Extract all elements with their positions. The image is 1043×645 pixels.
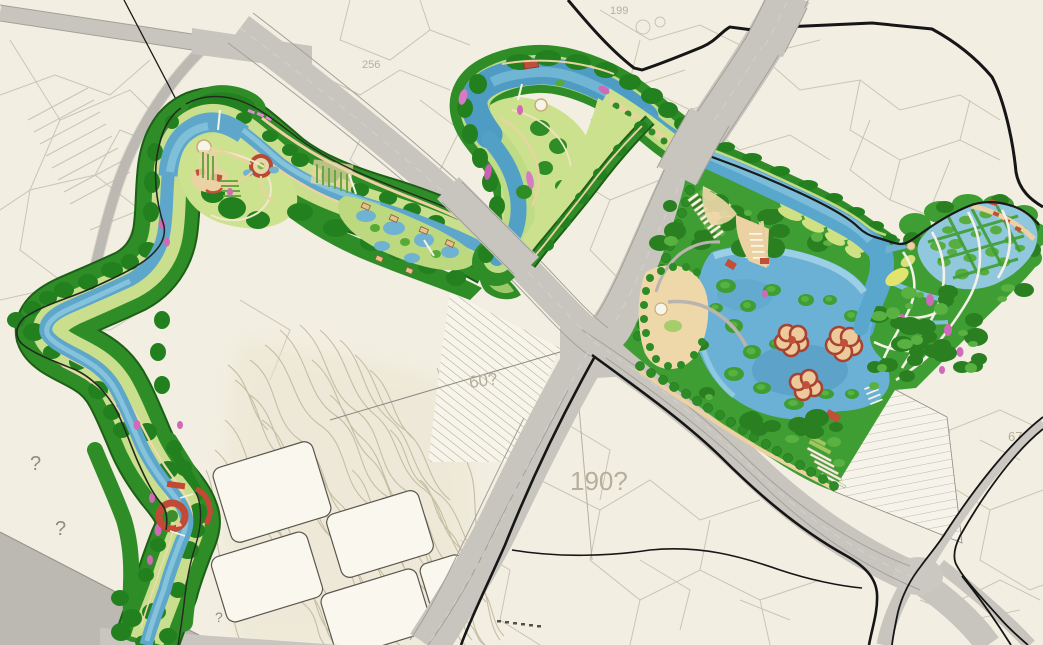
svg-text:60?: 60? [468,369,499,392]
svg-text:256: 256 [362,59,380,71]
svg-text:190?: 190? [570,466,628,496]
svg-text:?: ? [215,609,223,625]
svg-text:199: 199 [610,5,628,17]
svg-text:?: ? [55,518,66,540]
svg-text:?: ? [30,453,41,475]
